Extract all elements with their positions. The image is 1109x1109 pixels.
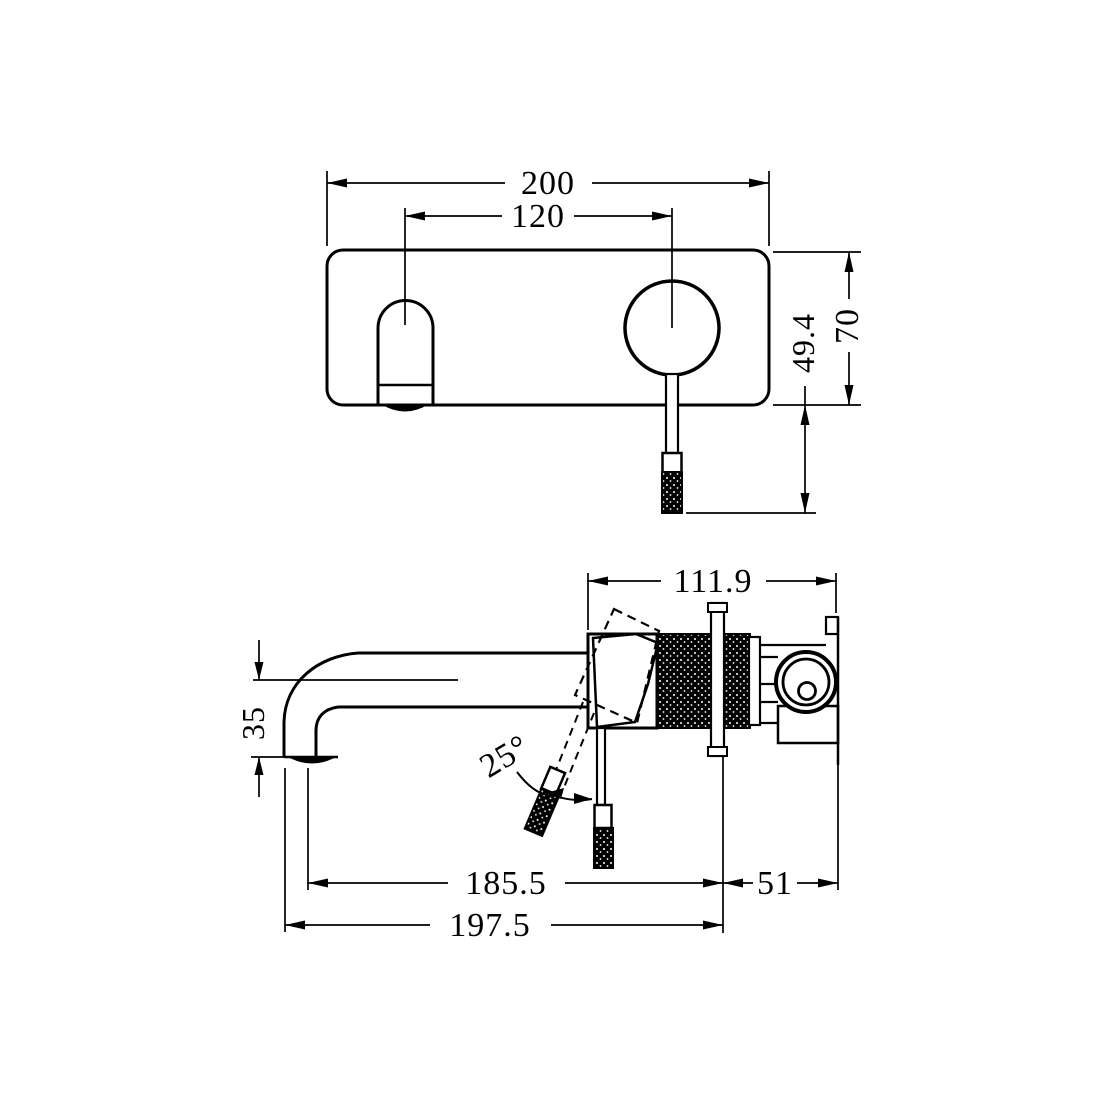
- technical-drawing-canvas: 200 120 70: [0, 0, 1109, 1109]
- dim-200-label: 200: [521, 165, 575, 202]
- handle-knurl-side: [594, 828, 613, 868]
- technical-drawing-page: 200 120 70: [0, 0, 1109, 1109]
- handle-stem-side: [597, 728, 605, 805]
- dim-70-label: 70: [829, 308, 866, 344]
- wall-plate-edge: [711, 603, 724, 756]
- dim-51-label: 51: [757, 865, 793, 902]
- dim-197-5-label: 197.5: [449, 907, 531, 944]
- cartridge-knurl-collar: [657, 634, 750, 728]
- rear-bracket-tab: [826, 617, 838, 634]
- dim-49-4-label: 49.4: [785, 313, 821, 373]
- handle-knurl-front: [662, 472, 682, 513]
- collar-end-cap: [749, 637, 760, 725]
- wall-plate-bottom-cap: [708, 747, 727, 756]
- wall-plate-top-cap: [708, 603, 727, 612]
- handle-ferrule-side: [595, 805, 612, 828]
- dim-120-label: 120: [511, 198, 565, 235]
- inlet-port-circle: [799, 683, 816, 700]
- handle-ferrule-front: [663, 453, 682, 473]
- handle-stem-front: [666, 374, 678, 454]
- dim-35-label: 35: [235, 706, 271, 740]
- dim-111-9-label: 111.9: [674, 563, 753, 600]
- dim-185-5-label: 185.5: [465, 865, 547, 902]
